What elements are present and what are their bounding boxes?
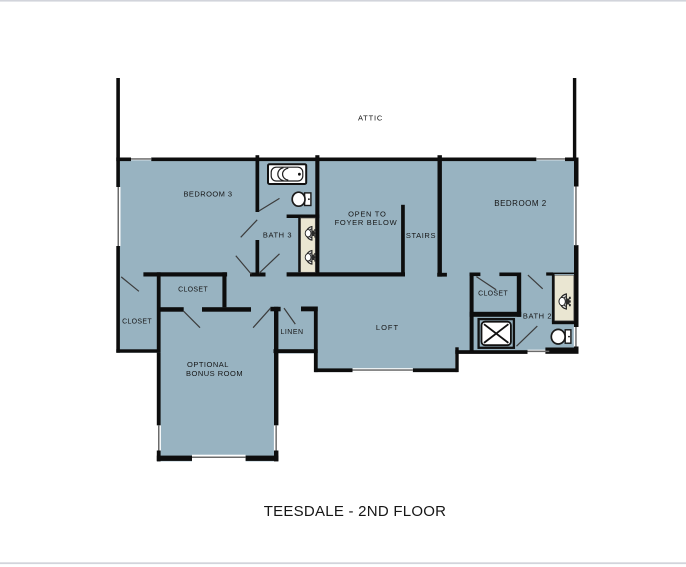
svg-text:LINEN: LINEN bbox=[280, 329, 303, 336]
svg-text:LOFT: LOFT bbox=[376, 323, 399, 332]
svg-text:CLOSET: CLOSET bbox=[478, 290, 508, 297]
svg-text:BONUS ROOM: BONUS ROOM bbox=[186, 369, 243, 378]
svg-text:BEDROOM 3: BEDROOM 3 bbox=[183, 189, 232, 198]
svg-text:BATH 3: BATH 3 bbox=[263, 230, 292, 239]
svg-text:BEDROOM 2: BEDROOM 2 bbox=[494, 199, 547, 208]
svg-text:CLOSET: CLOSET bbox=[122, 318, 152, 325]
svg-text:TEESDALE - 2ND FLOOR: TEESDALE - 2ND FLOOR bbox=[264, 503, 447, 520]
svg-text:ATTIC: ATTIC bbox=[358, 114, 383, 123]
svg-text:STAIRS: STAIRS bbox=[406, 231, 436, 240]
svg-text:FOYER BELOW: FOYER BELOW bbox=[335, 218, 398, 227]
svg-text:CLOSET: CLOSET bbox=[178, 286, 208, 293]
svg-text:BATH 2: BATH 2 bbox=[523, 312, 552, 321]
